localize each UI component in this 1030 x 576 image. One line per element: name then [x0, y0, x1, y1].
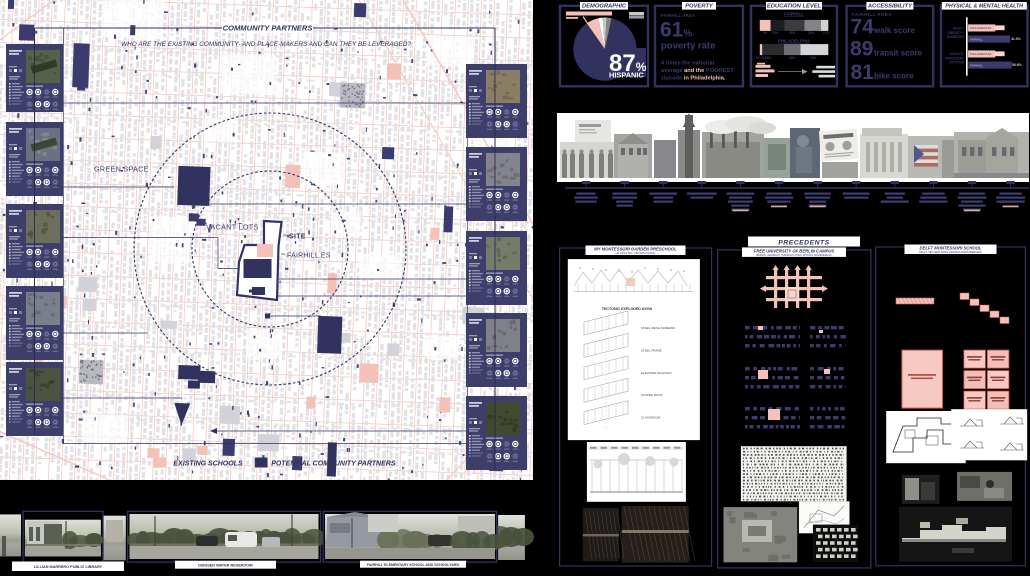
- svg-text:TECTONIC EXPLODED AXON: TECTONIC EXPLODED AXON: [602, 307, 653, 311]
- svg-text:PHYSICAL & MENTAL HEALTH: PHYSICAL & MENTAL HEALTH: [945, 4, 1023, 10]
- svg-text:HA LONG BAY, VIETNAM (HGAA): HA LONG BAY, VIETNAM (HGAA): [616, 251, 656, 255]
- svg-text:average and the POOREST: average and the POOREST: [661, 68, 734, 74]
- svg-text:SLOPED ROOF: SLOPED ROOF: [641, 393, 663, 397]
- svg-text:walk score: walk score: [873, 26, 915, 35]
- svg-text:poverty rate: poverty rate: [661, 41, 715, 52]
- svg-text:25%: 25%: [765, 56, 772, 60]
- svg-text:CLASSROOM: CLASSROOM: [641, 416, 661, 420]
- svg-text:FAIRHILL ELEMENTARY SCHOOL AND: FAIRHILL ELEMENTARY SCHOOL AND SCHOOLYAR…: [367, 563, 460, 567]
- svg-text:EXISTING SCHOOLS: EXISTING SCHOOLS: [173, 460, 243, 467]
- svg-text:STEEL MESH SCREENS: STEEL MESH SCREENS: [641, 326, 675, 330]
- svg-text:PHILADELPHIA: PHILADELPHIA: [778, 38, 811, 43]
- svg-text:LILLIAN MARRERO PUBLIC LIBRARY: LILLIAN MARRERO PUBLIC LIBRARY: [34, 565, 103, 569]
- svg-text:FAIRHILL AREA: FAIRHILL AREA: [661, 13, 695, 18]
- svg-text:4 times the national: 4 times the national: [661, 60, 715, 66]
- svg-text:DOCTOR: DOCTOR: [949, 61, 964, 65]
- svg-text:DISUSED WATER RESERVOIR: DISUSED WATER RESERVOIR: [198, 564, 253, 568]
- svg-text:zipcode in Philadelphia.: zipcode in Philadelphia.: [661, 75, 726, 81]
- svg-text:74: 74: [851, 16, 875, 39]
- svg-text:29%: 29%: [789, 31, 796, 35]
- svg-text:ELEVATED WALKWAY: ELEVATED WALKWAY: [641, 371, 672, 375]
- svg-text:FAIRHILL: FAIRHILL: [970, 63, 983, 67]
- svg-text:81: 81: [851, 61, 875, 84]
- svg-text:89: 89: [850, 38, 873, 61]
- svg-text:COMMUNITY PARTNERS: COMMUNITY PARTNERS: [223, 24, 313, 33]
- svg-text:GREEN SPACE: GREEN SPACE: [94, 165, 149, 174]
- svg-text:EDUCATION LEVEL: EDUCATION LEVEL: [767, 4, 822, 10]
- svg-text:SITE: SITE: [289, 234, 306, 241]
- svg-text:41.3%: 41.3%: [1011, 37, 1021, 41]
- svg-text:HISPANIC: HISPANIC: [609, 71, 644, 80]
- svg-text:FREE UNIVERSITY OF BERLIN CAMP: FREE UNIVERSITY OF BERLIN CAMPUS: [754, 248, 835, 253]
- svg-text:PHILADELPHIA: PHILADELPHIA: [970, 26, 992, 30]
- svg-text:PHILADELPHIA: PHILADELPHIA: [970, 52, 992, 56]
- svg-text:9%: 9%: [763, 31, 768, 35]
- svg-text:PRECEDENTS: PRECEDENTS: [778, 240, 829, 247]
- svg-text:BERLIN, GERMANY (CANDILIS JOSI: BERLIN, GERMANY (CANDILIS JOSIC WOODS SC…: [756, 253, 831, 257]
- svg-text:DIABETES: DIABETES: [947, 35, 965, 39]
- svg-text:30%: 30%: [789, 56, 796, 60]
- svg-text:17%: 17%: [823, 31, 830, 35]
- svg-text:MY MONTESSORI GARDEN PRESCHOOL: MY MONTESSORI GARDEN PRESCHOOL: [594, 246, 677, 251]
- svg-text:STEEL FRAME: STEEL FRAME: [641, 348, 662, 352]
- svg-text:32%: 32%: [808, 31, 815, 35]
- svg-text:13%: 13%: [772, 31, 779, 35]
- svg-text:34%: 34%: [810, 56, 817, 60]
- svg-text:WHO ARE THE EXISTING COMMUNITY: WHO ARE THE EXISTING COMMUNITY- AND PLAC…: [121, 41, 411, 48]
- svg-text:VACANT LOTS: VACANT LOTS: [206, 223, 259, 232]
- svg-text:ACCESSIBILITY: ACCESSIBILITY: [867, 4, 913, 10]
- svg-text:POTENTIAL COMMUNITY PARTNERS: POTENTIAL COMMUNITY PARTNERS: [271, 460, 396, 467]
- svg-text:58.6%: 58.6%: [1012, 63, 1022, 67]
- svg-text:FAIRHILL ES: FAIRHILL ES: [287, 253, 331, 260]
- svg-text:POVERTY: POVERTY: [685, 4, 714, 10]
- svg-text:FAIRHILL: FAIRHILL: [970, 37, 983, 41]
- svg-text:DELFT, NETHERLANDS (HERMAN HER: DELFT, NETHERLANDS (HERMAN HERTZBERGER): [919, 250, 982, 254]
- svg-text:DEMOGRAPHIC: DEMOGRAPHIC: [582, 4, 627, 10]
- svg-text:DELFT MONTESSORI SCHOOL: DELFT MONTESSORI SCHOOL: [920, 245, 982, 250]
- svg-text:transit score: transit score: [874, 49, 923, 58]
- svg-text:bike score: bike score: [874, 72, 914, 81]
- svg-text:FAIRHILL: FAIRHILL: [784, 12, 804, 17]
